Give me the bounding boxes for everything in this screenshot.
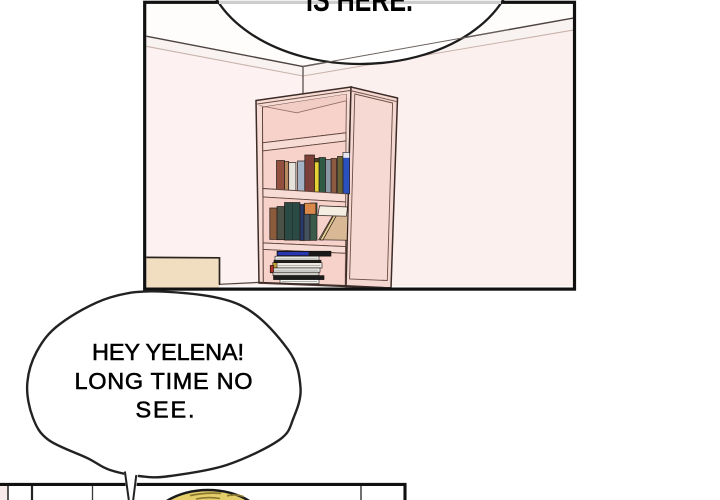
svg-text:HEY YELENA!: HEY YELENA! [92, 339, 244, 365]
svg-text:IS HERE.: IS HERE. [306, 0, 413, 18]
svg-text:SEE.: SEE. [136, 397, 195, 423]
svg-text:LONG TIME NO: LONG TIME NO [75, 368, 253, 394]
